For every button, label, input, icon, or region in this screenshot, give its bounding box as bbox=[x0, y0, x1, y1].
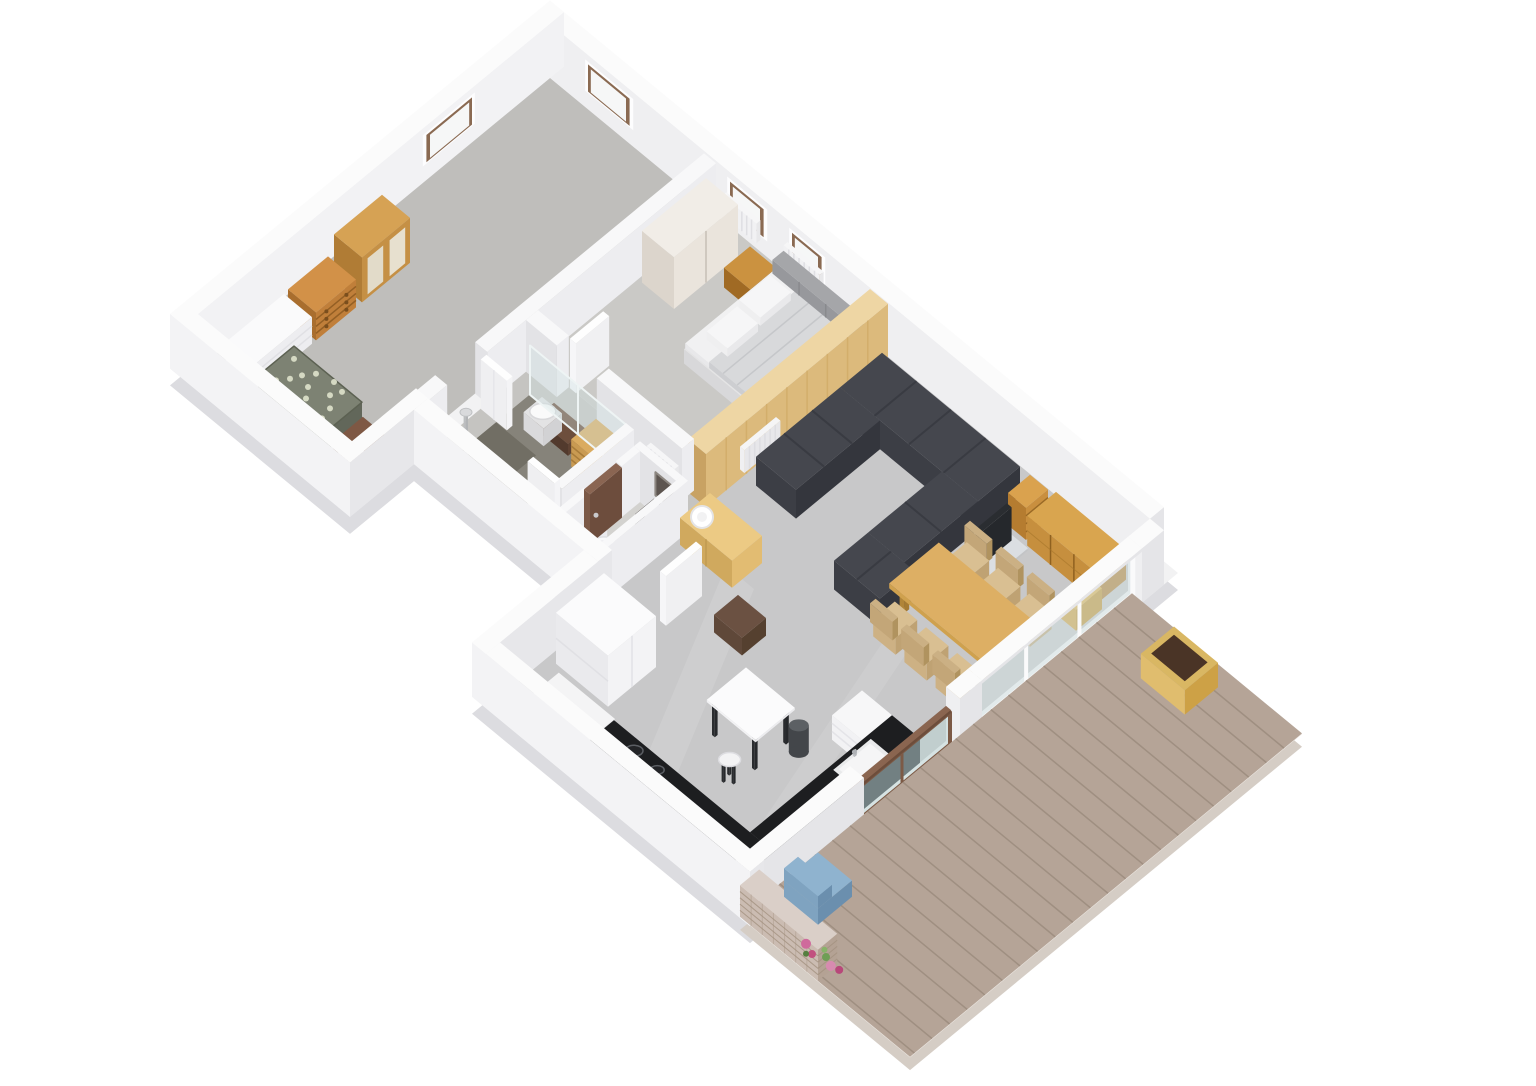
floorplan-3d-render bbox=[0, 0, 1536, 1086]
floorplan-svg bbox=[0, 0, 1536, 1086]
shower-head bbox=[460, 408, 472, 416]
entry-pendant-core bbox=[697, 512, 707, 522]
floorplan-page bbox=[0, 0, 1536, 1086]
trash-bin bbox=[789, 719, 809, 758]
kitchen-faucet-head bbox=[852, 749, 857, 754]
brown-door-handle bbox=[594, 513, 599, 518]
stool-seat bbox=[719, 753, 741, 767]
